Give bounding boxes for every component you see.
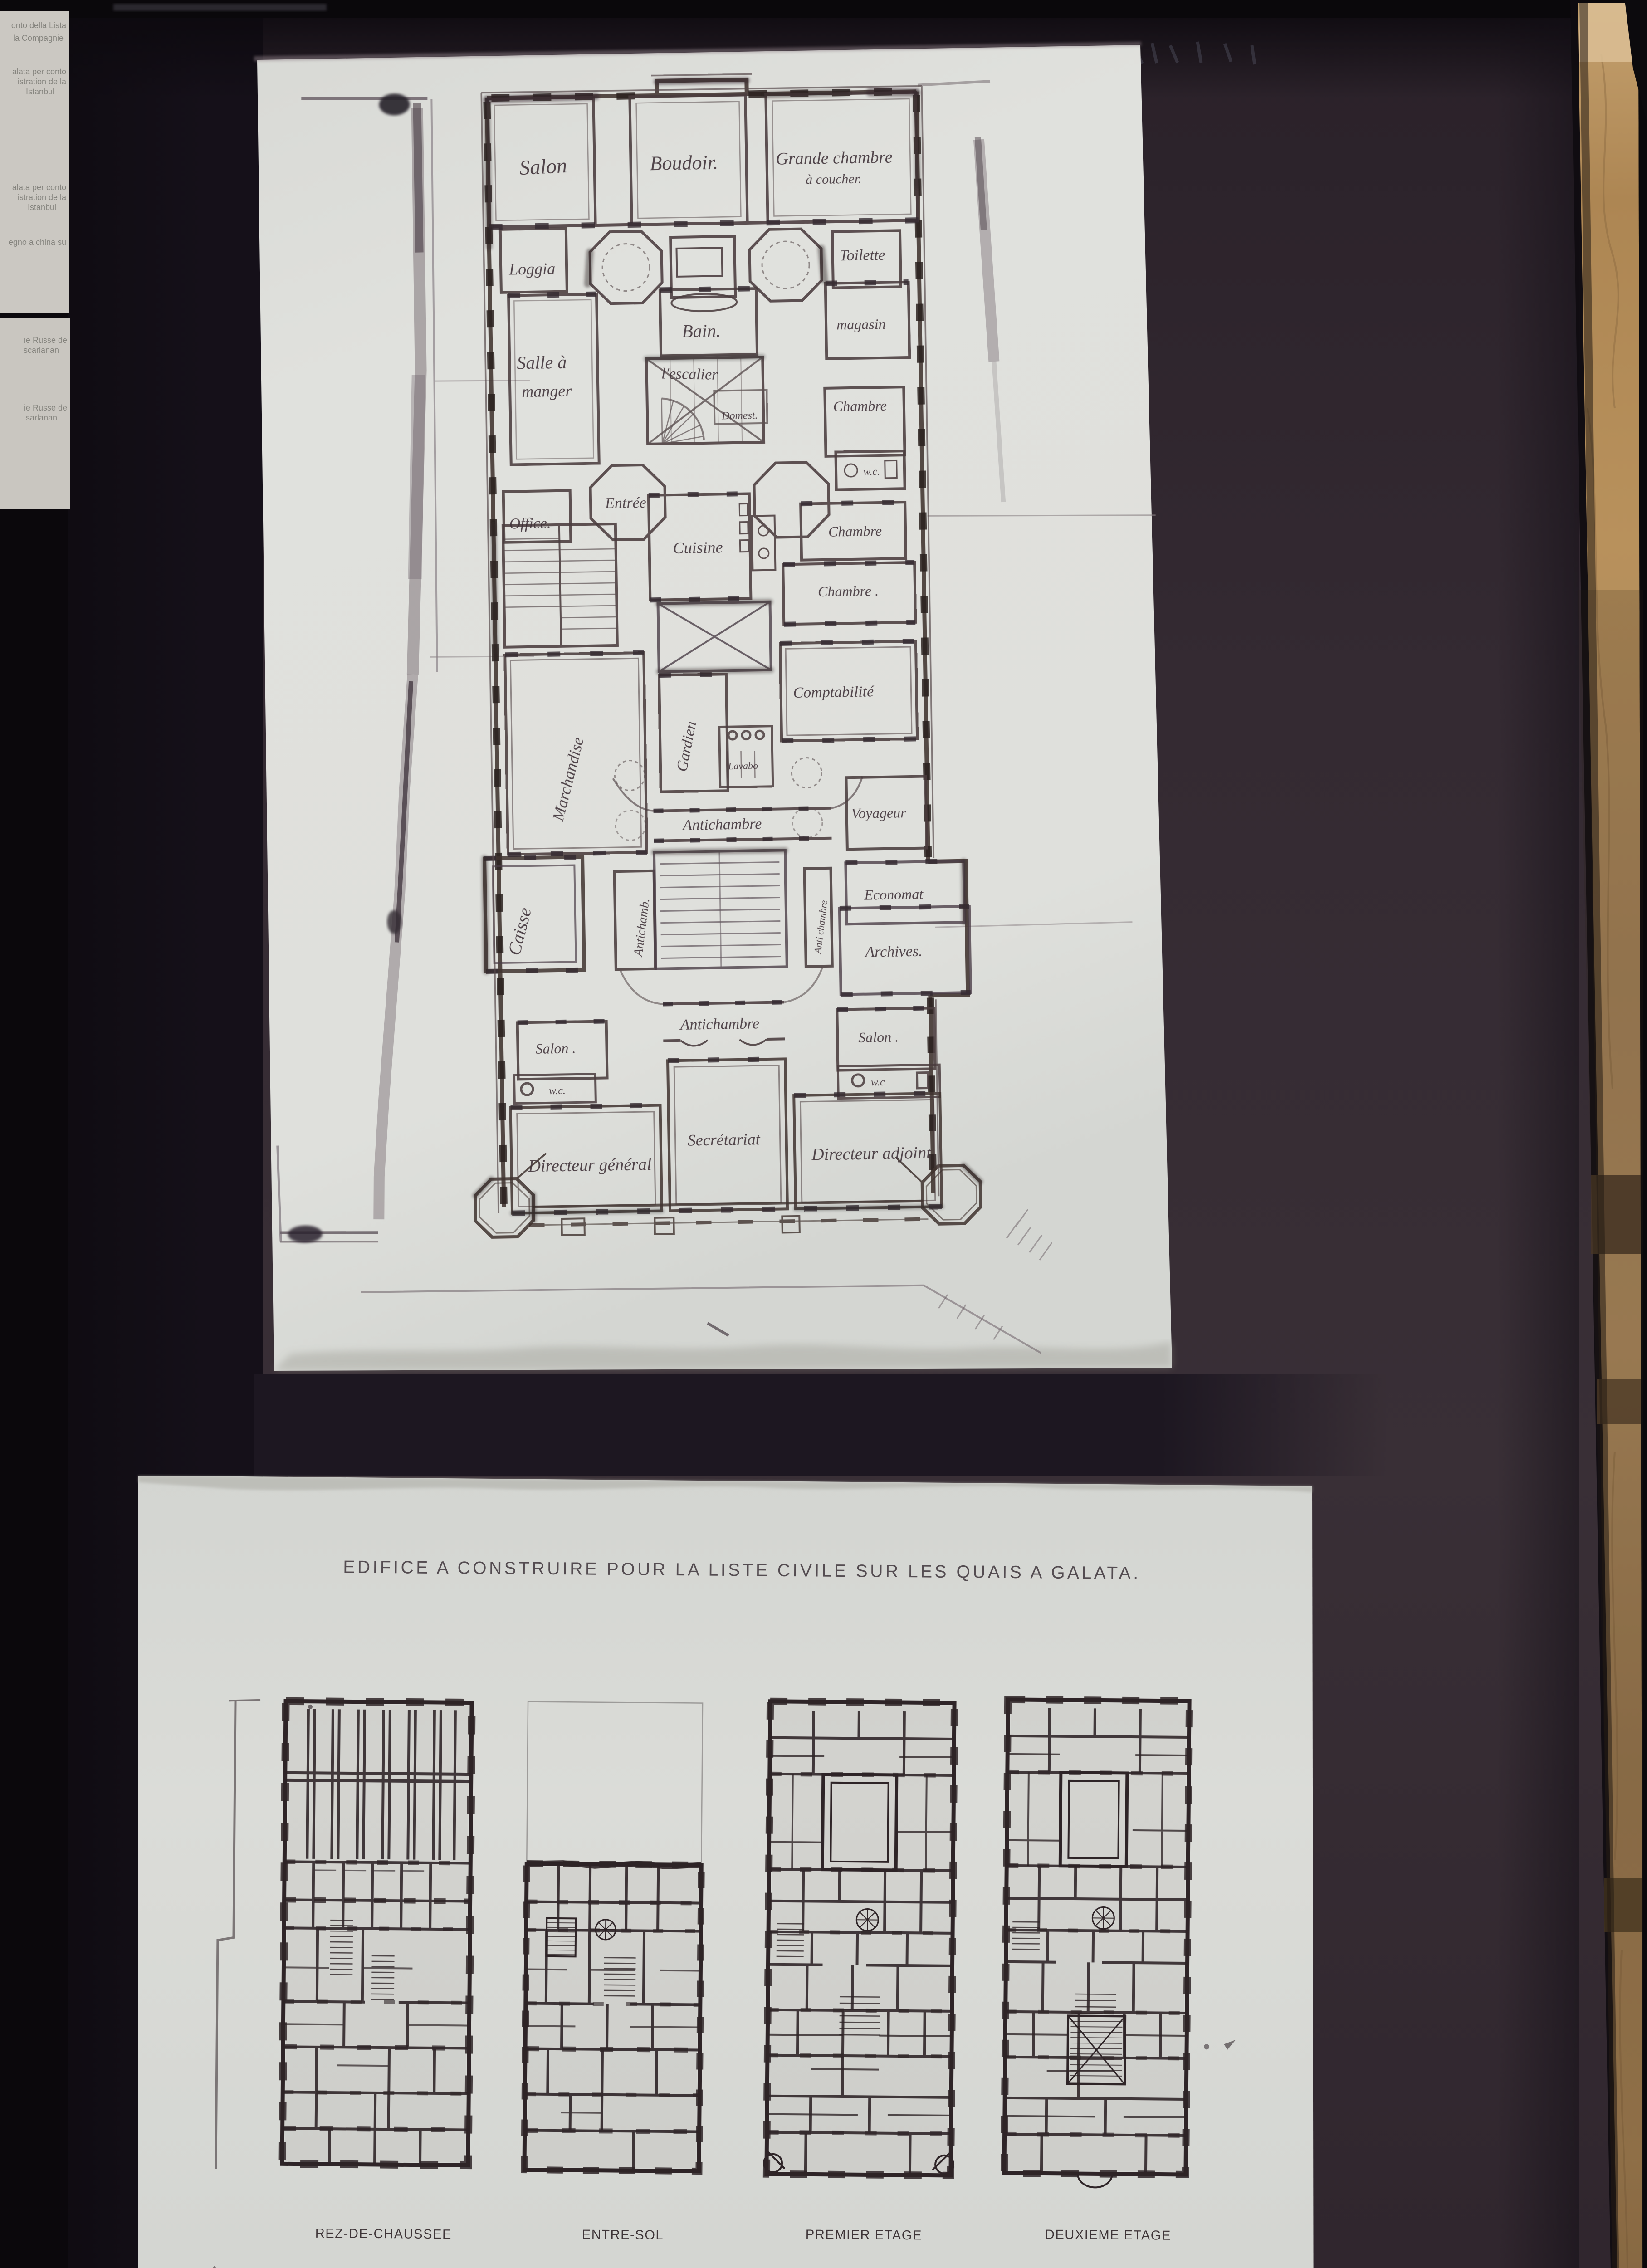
svg-text:REZ-DE-CHAUSSEE: REZ-DE-CHAUSSEE [315, 2226, 452, 2242]
svg-text:Grande chambre: Grande chambre [776, 148, 893, 169]
svg-text:Loggia: Loggia [508, 259, 556, 279]
svg-text:la Compagnie: la Compagnie [13, 34, 64, 43]
svg-text:Comptabilité: Comptabilité [793, 683, 875, 701]
svg-text:ie Russe de: ie Russe de [24, 403, 67, 412]
svg-text:Bain.: Bain. [682, 320, 721, 341]
svg-text:scarlanan: scarlanan [24, 346, 59, 355]
svg-text:Chambre: Chambre [828, 523, 882, 540]
svg-text:Office.: Office. [509, 515, 551, 532]
svg-text:istration de la: istration de la [18, 193, 67, 202]
svg-text:DEUXIEME ETAGE: DEUXIEME ETAGE [1045, 2228, 1171, 2243]
svg-text:Lavabo: Lavabo [728, 760, 758, 772]
svg-text:Salle à: Salle à [517, 352, 567, 373]
svg-text:w.c.: w.c. [863, 466, 880, 478]
svg-text:Antichambre: Antichambre [679, 1015, 759, 1033]
svg-text:Voyageur: Voyageur [851, 804, 906, 821]
svg-text:istration de la: istration de la [18, 77, 67, 86]
svg-text:manger: manger [522, 381, 572, 401]
svg-text:ie Russe de: ie Russe de [24, 336, 67, 345]
svg-text:Toilette: Toilette [839, 247, 885, 264]
svg-text:Directeur général: Directeur général [528, 1155, 652, 1176]
svg-text:Economat: Economat [864, 886, 924, 903]
svg-text:egno a china su: egno a china su [9, 238, 66, 247]
svg-text:magasin: magasin [836, 316, 886, 333]
svg-text:Secrétariat: Secrétariat [687, 1130, 761, 1149]
svg-text:Istanbul: Istanbul [28, 203, 56, 212]
svg-text:Salon .: Salon . [535, 1040, 576, 1056]
svg-text:l'escalier: l'escalier [661, 365, 718, 383]
svg-text:alata per conto: alata per conto [12, 183, 66, 192]
svg-text:Entrée: Entrée [605, 494, 646, 512]
svg-text:Domest.: Domest. [721, 410, 758, 422]
svg-text:Boudoir.: Boudoir. [650, 151, 718, 174]
svg-text:onto della Lista: onto della Lista [11, 21, 67, 30]
svg-text:Chambre: Chambre [833, 397, 887, 415]
svg-text:ENTRE-SOL: ENTRE-SOL [582, 2228, 664, 2243]
svg-text:w.c: w.c [871, 1076, 885, 1088]
svg-text:Chambre .: Chambre . [818, 582, 879, 600]
svg-text:Archives.: Archives. [864, 943, 923, 961]
svg-text:Salon: Salon [519, 154, 567, 179]
svg-text:Directeur adjoint: Directeur adjoint [811, 1143, 932, 1164]
svg-text:Istanbul: Istanbul [26, 87, 54, 96]
svg-text:à coucher.: à coucher. [806, 171, 862, 187]
svg-text:PREMIER ETAGE: PREMIER ETAGE [806, 2227, 922, 2243]
svg-text:Salon .: Salon . [858, 1029, 899, 1046]
svg-text:w.c.: w.c. [549, 1085, 566, 1097]
svg-text:sarlanan: sarlanan [26, 413, 57, 422]
svg-text:Cuisine: Cuisine [673, 538, 723, 557]
svg-text:Antichambre: Antichambre [682, 816, 762, 834]
svg-text:alata per conto: alata per conto [12, 67, 66, 76]
